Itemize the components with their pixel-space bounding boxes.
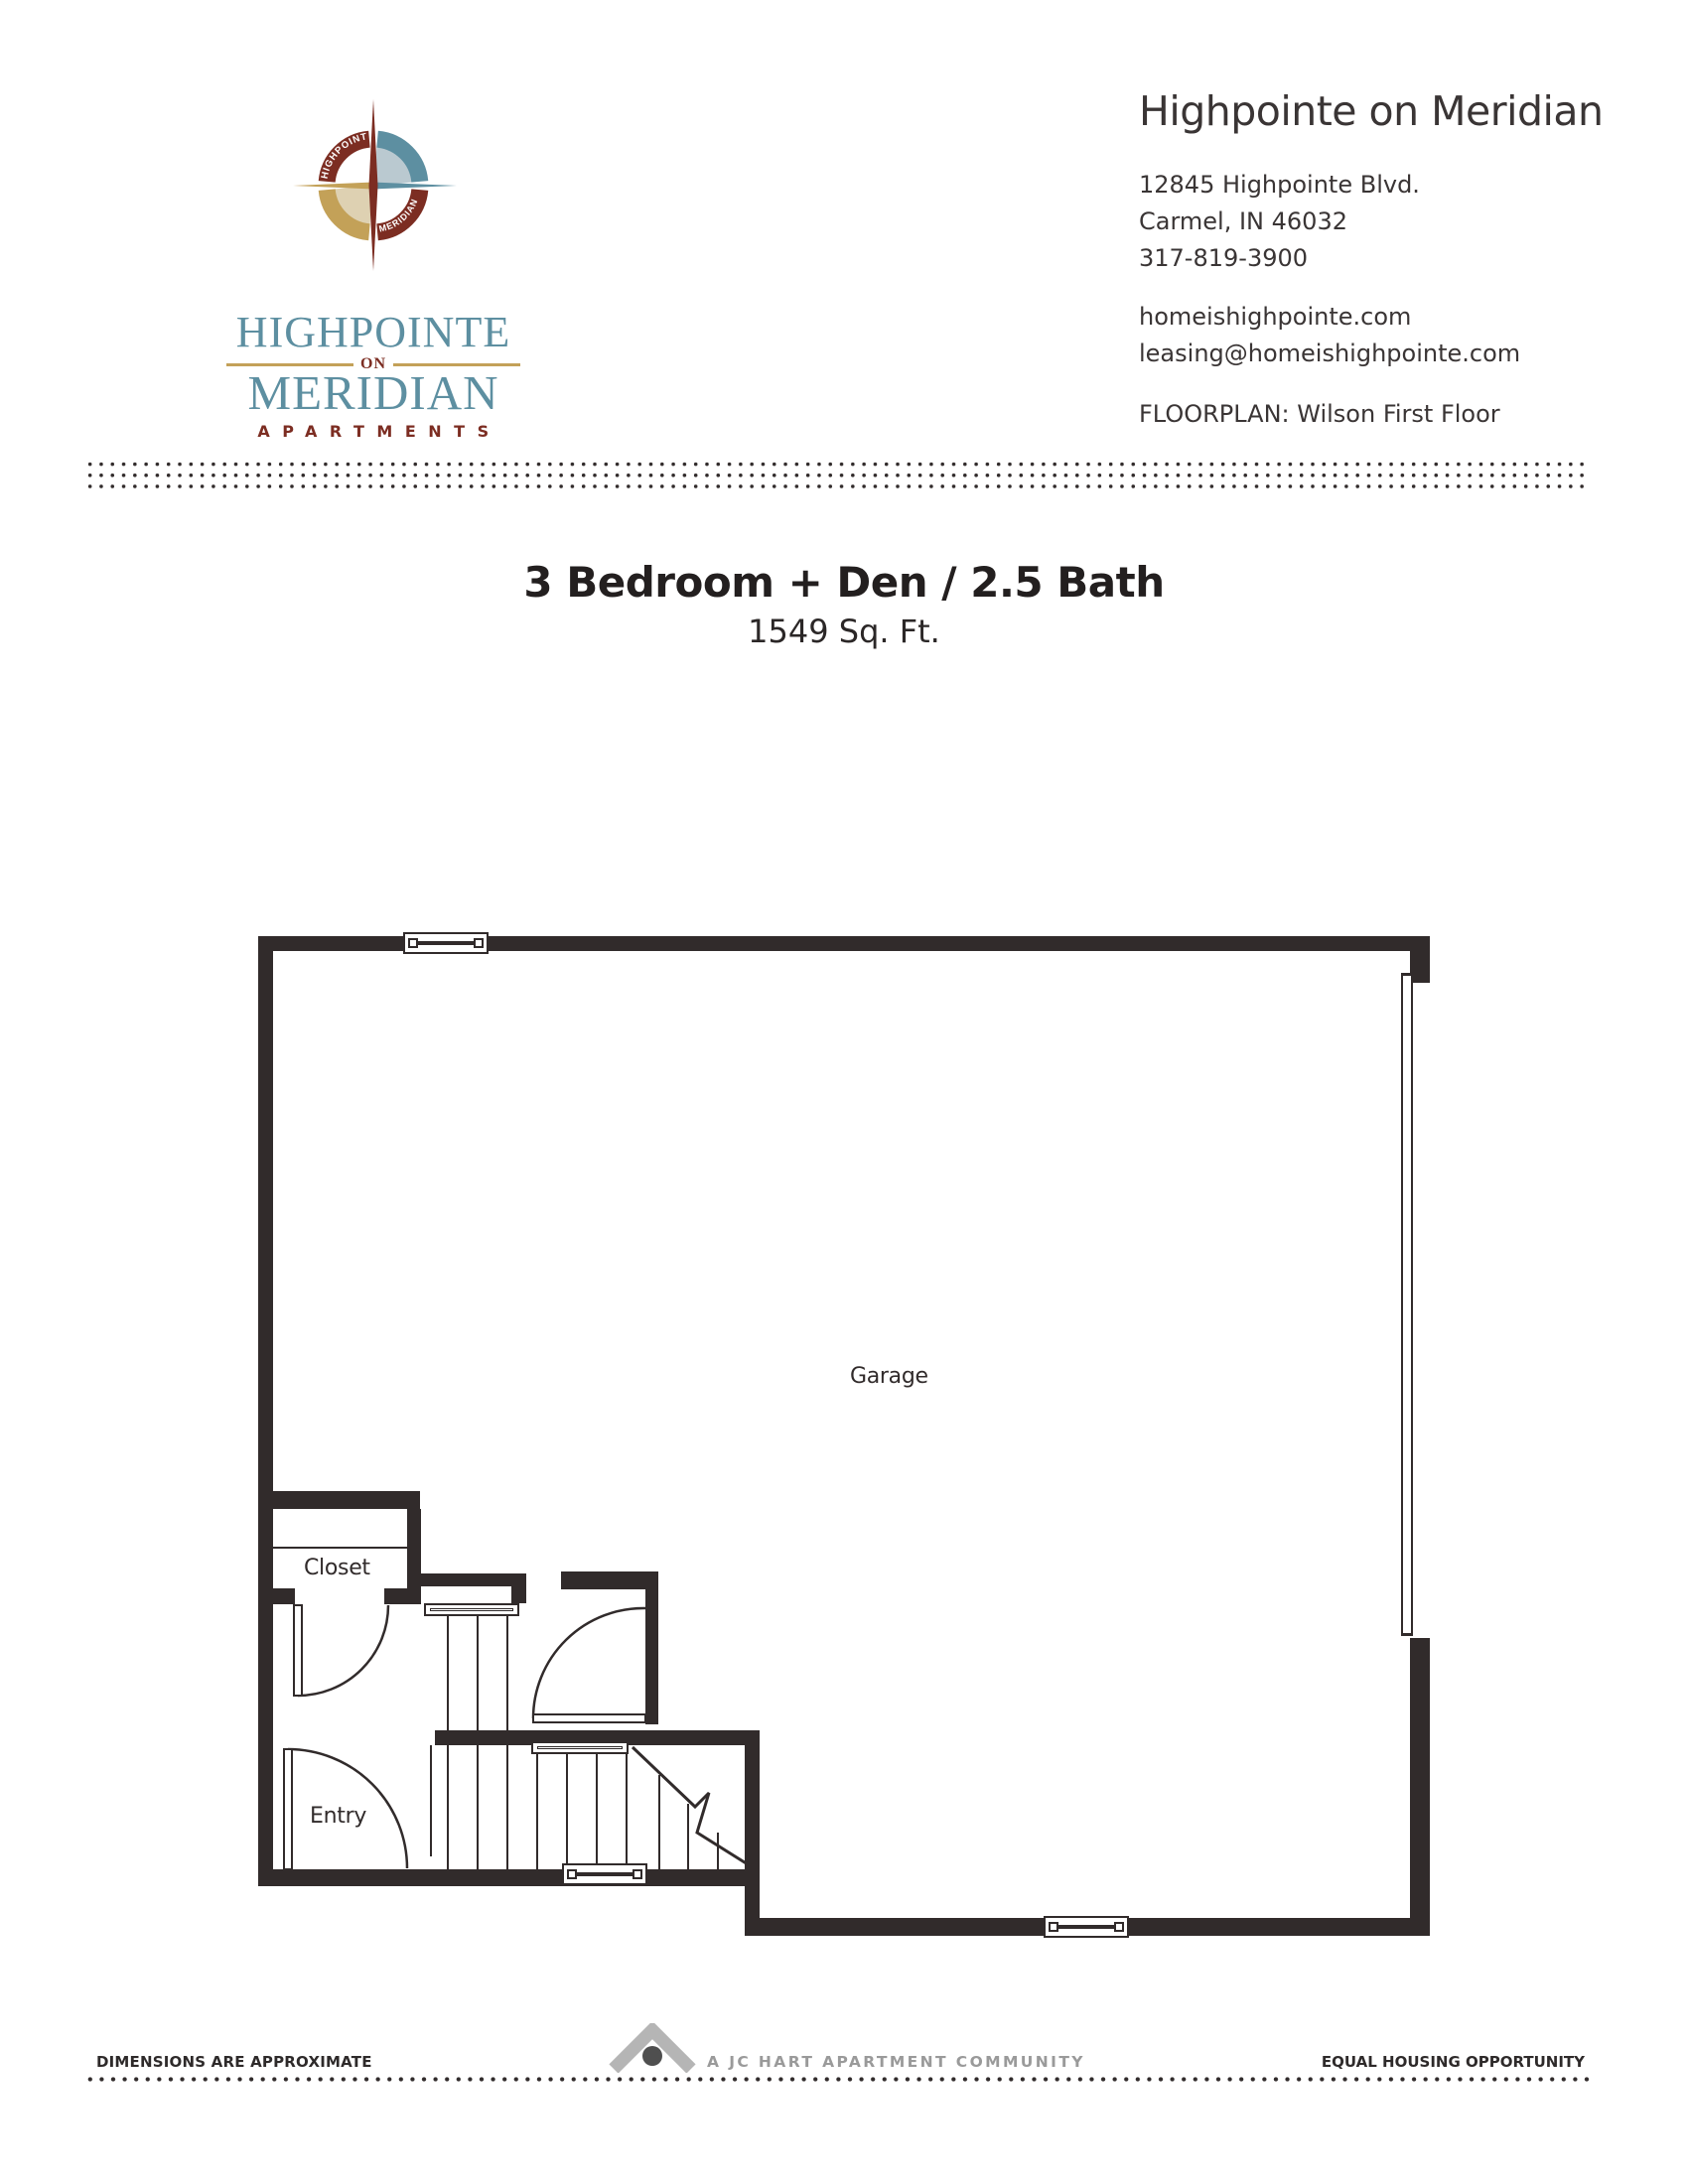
room-label-garage: Garage xyxy=(850,1364,928,1389)
community-note: A JC HART APARTMENT COMMUNITY xyxy=(707,2053,1085,2071)
stair-riser xyxy=(596,1745,598,1869)
closet-door-leaf xyxy=(294,1605,302,1696)
wall-landing-stub xyxy=(511,1586,526,1603)
window-bar xyxy=(1051,1925,1122,1929)
stair-tread-inner xyxy=(537,1746,623,1749)
wall-landing-a xyxy=(420,1573,526,1586)
wall-corner-topright xyxy=(1410,936,1430,983)
stair-edge-line xyxy=(430,1745,432,1856)
room-label-closet: Closet xyxy=(304,1556,370,1580)
dimensions-note: DIMENSIONS ARE APPROXIMATE xyxy=(96,2053,372,2071)
wall-landing-jamb xyxy=(645,1589,658,1724)
jchart-logo xyxy=(608,2023,699,2073)
stair-riser xyxy=(687,1804,689,1869)
closet-door-arc xyxy=(298,1605,388,1696)
wall-closet-top xyxy=(258,1491,420,1509)
floorplan-linework xyxy=(0,0,1688,2184)
equal-housing-note: EQUAL HOUSING OPPORTUNITY xyxy=(1322,2053,1585,2071)
window-cap xyxy=(633,1869,642,1879)
window-cap xyxy=(408,938,418,948)
window-garage-wall xyxy=(1044,1916,1129,1938)
wall-left xyxy=(258,936,273,1886)
stair-riser xyxy=(506,1745,508,1869)
window-top-wall xyxy=(403,932,489,954)
garage-overhead-door xyxy=(1401,973,1413,1636)
stair-riser xyxy=(566,1745,568,1869)
wall-step-vertical xyxy=(745,1730,760,1936)
stair-riser xyxy=(717,1833,719,1869)
window-cap xyxy=(1114,1922,1124,1932)
stair-riser xyxy=(477,1616,479,1730)
closet-shelf-line xyxy=(273,1547,407,1549)
window-cap xyxy=(474,938,484,948)
stair-riser xyxy=(658,1775,660,1869)
wall-landing-b xyxy=(561,1571,658,1589)
floorplan: Garage Closet Entry xyxy=(0,0,1688,2184)
flyer-page: HIGHPOINTE MERIDIAN HIGHPOINTE ON MERIDI… xyxy=(0,0,1688,2184)
stair-break-line xyxy=(633,1747,748,1864)
wall-closet-stub-right xyxy=(384,1588,421,1604)
window-entry-wall xyxy=(562,1863,647,1885)
stair-riser xyxy=(506,1616,508,1730)
stair-tread-inner xyxy=(430,1608,513,1611)
stair-riser xyxy=(477,1745,479,1869)
window-bar xyxy=(410,941,482,945)
garage-hall-door-arc xyxy=(533,1608,645,1718)
wall-closet-stub-left xyxy=(258,1588,295,1604)
entry-door-leaf xyxy=(284,1749,292,1869)
garage-hall-door-leaf xyxy=(533,1714,645,1722)
window-cap xyxy=(1049,1922,1058,1932)
stair-tread-lower xyxy=(531,1741,629,1754)
stair-riser xyxy=(447,1616,449,1730)
stair-riser xyxy=(626,1745,628,1869)
wall-right-lower xyxy=(1410,1638,1430,1936)
bottom-dotted-separator xyxy=(84,2076,1590,2083)
stair-riser xyxy=(536,1745,538,1869)
window-cap xyxy=(567,1869,577,1879)
stair-riser xyxy=(447,1745,449,1869)
room-label-entry: Entry xyxy=(310,1804,366,1829)
wall-entry-bottom xyxy=(258,1869,752,1886)
stair-tread-upper xyxy=(424,1603,519,1616)
jchart-circle-icon xyxy=(642,2046,662,2066)
window-bar xyxy=(569,1872,640,1876)
